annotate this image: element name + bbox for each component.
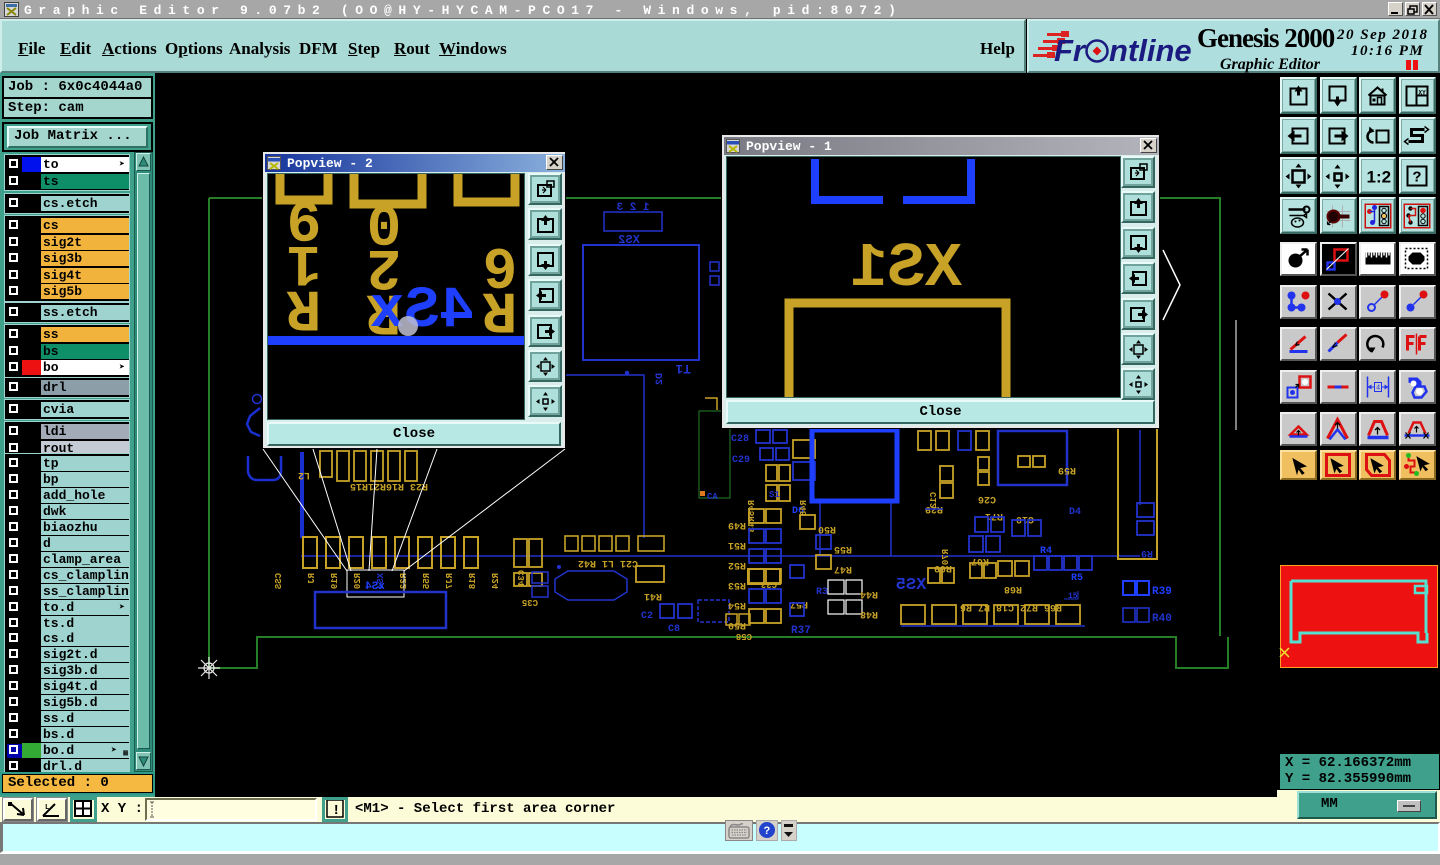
svg-text:R23 R16R21R15: R23 R16R21R15 xyxy=(350,480,428,491)
svg-text:R24: R24 xyxy=(491,573,501,590)
svg-text:XS5: XS5 xyxy=(896,576,927,595)
svg-text:R54: R54 xyxy=(728,599,746,610)
svg-text:R37: R37 xyxy=(791,625,811,637)
svg-text:R9: R9 xyxy=(1141,547,1153,558)
svg-text:R53: R53 xyxy=(728,579,746,590)
svg-text:R48: R48 xyxy=(860,608,878,619)
svg-text:?: ? xyxy=(1413,169,1422,186)
svg-text:0: 0 xyxy=(367,188,402,253)
svg-text:1:2: 1:2 xyxy=(1366,167,1391,186)
svg-text:C33: C33 xyxy=(761,579,777,589)
svg-text:ntline: ntline xyxy=(1109,33,1192,68)
svg-text:R5: R5 xyxy=(1071,573,1083,584)
svg-text:R52: R52 xyxy=(728,559,746,570)
svg-text:C12: C12 xyxy=(929,492,939,508)
svg-text:D4: D4 xyxy=(1069,507,1081,518)
svg-text:R50: R50 xyxy=(728,619,746,630)
svg-text:C28: C28 xyxy=(731,434,749,445)
svg-text:C29: C29 xyxy=(732,455,750,466)
svg-text:6: 6 xyxy=(483,231,518,296)
svg-text:R19: R19 xyxy=(330,573,340,589)
svg-text:S1: S1 xyxy=(769,490,780,500)
svg-text:1 2 3: 1 2 3 xyxy=(616,202,649,214)
svg-text:4Sx: 4Sx xyxy=(370,279,474,344)
svg-text:C21 L1 R42: C21 L1 R42 xyxy=(578,557,638,568)
svg-text:R50: R50 xyxy=(818,523,836,534)
svg-text:L: L xyxy=(45,804,49,812)
svg-text:9: 9 xyxy=(287,184,322,249)
svg-text:C34: C34 xyxy=(517,570,527,587)
svg-text:4: 4 xyxy=(1376,384,1380,392)
svg-text:R47: R47 xyxy=(834,563,852,574)
svg-text:R66 R72 C18 R7 R6: R66 R72 C18 R7 R6 xyxy=(960,601,1062,612)
svg-text:R20: R20 xyxy=(353,573,363,589)
svg-text:L2: L2 xyxy=(298,469,310,480)
svg-text:XY: XY xyxy=(1419,89,1427,96)
svg-text:R41: R41 xyxy=(644,590,662,601)
svg-text:R55: R55 xyxy=(834,543,852,554)
svg-text:T1: T1 xyxy=(675,361,691,376)
svg-text:R3: R3 xyxy=(816,587,828,598)
svg-text:CA: CA xyxy=(707,492,718,502)
svg-text:RJ: RJ xyxy=(307,573,317,584)
svg-text:R48: R48 xyxy=(799,500,809,516)
svg-text:R18: R18 xyxy=(468,573,478,589)
svg-text:CSS: CSS xyxy=(274,573,284,590)
svg-text:C35: C35 xyxy=(522,597,538,607)
svg-text:R51: R51 xyxy=(728,539,746,550)
svg-text:C26: C26 xyxy=(978,493,996,504)
svg-text:!: ! xyxy=(332,803,340,819)
svg-text:C8: C8 xyxy=(668,624,680,635)
svg-text:R39: R39 xyxy=(1152,586,1172,598)
svg-text:R70: R70 xyxy=(941,549,951,565)
svg-text:C2: C2 xyxy=(641,611,653,622)
svg-text:Fr: Fr xyxy=(1054,33,1087,68)
svg-text:?: ? xyxy=(764,825,771,837)
svg-text:R68: R68 xyxy=(1004,583,1022,594)
svg-text:C58: C58 xyxy=(736,631,752,641)
svg-text:R44: R44 xyxy=(860,588,878,599)
svg-text:XS1: XS1 xyxy=(850,233,962,304)
svg-text:D2: D2 xyxy=(655,373,666,385)
svg-text:RJ7: RJ7 xyxy=(445,573,455,589)
svg-text:R55: R55 xyxy=(422,573,432,589)
svg-text:R40: R40 xyxy=(1152,613,1172,625)
svg-text:R67: R67 xyxy=(971,555,989,566)
svg-text:R59: R59 xyxy=(1058,464,1076,475)
svg-text:15: 15 xyxy=(1068,592,1078,601)
svg-text:R49: R49 xyxy=(728,519,746,530)
